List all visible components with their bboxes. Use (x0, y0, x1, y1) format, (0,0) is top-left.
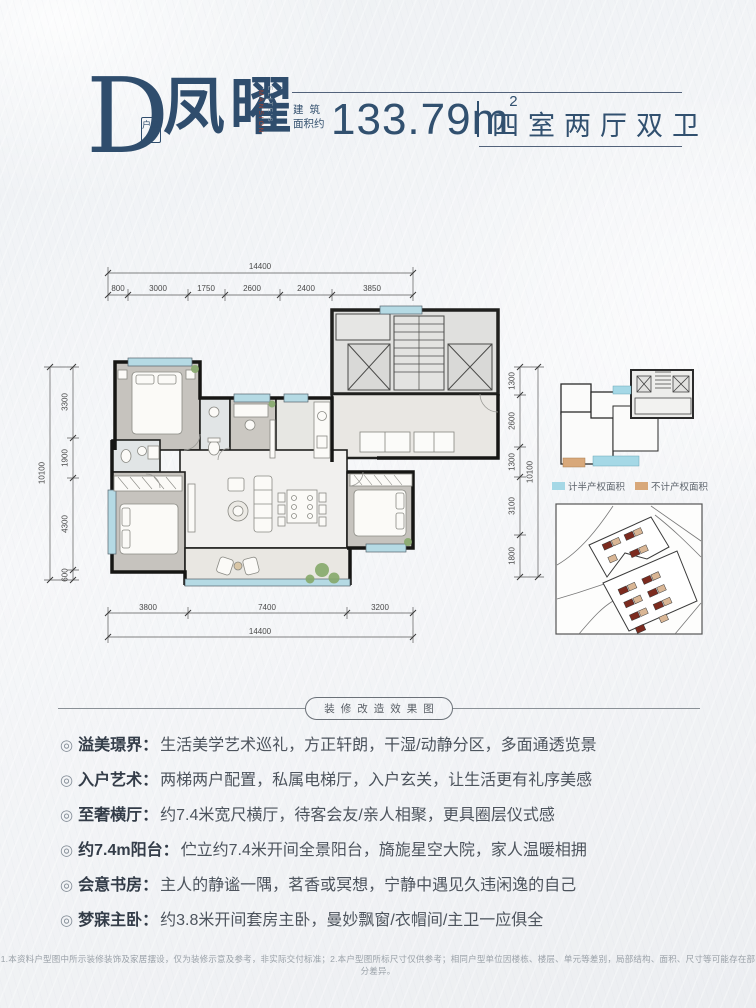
bullseye-icon: ◎ (60, 770, 73, 792)
dim-left-1: 1900 (61, 449, 70, 467)
legend-item-half: 计半产权面积 (552, 479, 625, 493)
feature-row: ◎ 约7.4m阳台 ： 伫立约7.4米开间全景阳台，旖旎星空大院，家人温暖相拥 (60, 840, 708, 875)
feature-title: 入户艺术 (78, 770, 142, 792)
dim-bottom-0: 3800 (139, 603, 157, 612)
dim-left-total: 10100 (38, 461, 47, 484)
dim-right-4: 1800 (508, 547, 517, 565)
dim-top-2: 1750 (197, 284, 215, 293)
dim-top-total: 14400 (249, 262, 272, 271)
key-plan (553, 366, 703, 476)
keyplan-excluded-area (563, 458, 585, 467)
feature-row: ◎ 入户艺术 ： 两梯两户配置，私属电梯厅，入户玄关，让生活更有礼序美感 (60, 770, 708, 805)
divider-capsule: 装修改造效果图 (305, 697, 453, 720)
dim-top-4: 2400 (297, 284, 315, 293)
area-value: 133.79m2 (331, 93, 519, 145)
feature-row: ◎ 梦寐主卧 ： 约3.8米开间套房主卧，曼妙飘窗/衣帽间/主卫一应俱全 (60, 910, 708, 945)
dim-bottom-total: 14400 (249, 627, 272, 636)
legend-item-excluded: 不计产权面积 (635, 479, 708, 493)
bullseye-icon: ◎ (60, 840, 73, 862)
feature-list: ◎ 溢美璟界 ： 生活美学艺术巡礼，方正轩朗，干湿/动静分区，多面通透览景 ◎ … (60, 735, 708, 945)
feature-row: ◎ 会意书房 ： 主人的静谧一隅，茗香或冥想，宁静中遇见久违闲逸的自己 (60, 875, 708, 910)
plan-name-en: ELITE'S MANSION (256, 86, 274, 160)
bullseye-icon: ◎ (60, 910, 73, 932)
plan-name: 凤曜 (163, 76, 297, 138)
divider-line-right (453, 708, 700, 709)
feature-desc: 主人的静谧一隅，茗香或冥想，宁静中遇见久违闲逸的自己 (160, 875, 576, 897)
plan-type-letter: D (86, 64, 169, 168)
site-plan (555, 503, 703, 635)
feature-colon: ： (142, 805, 158, 827)
divider-line-left (58, 708, 305, 709)
rooms-layout-text: 四室两厅双卫 (492, 104, 708, 143)
bullseye-icon: ◎ (60, 875, 73, 897)
dim-right-total: 10100 (526, 460, 535, 483)
feature-desc: 生活美学艺术巡礼，方正轩朗，干湿/动静分区，多面通透览景 (160, 735, 596, 757)
dim-left-2: 4300 (61, 515, 70, 533)
header-rule-bottom (479, 146, 682, 147)
dim-right-1: 2600 (508, 412, 517, 430)
feature-title: 会意书房 (78, 875, 142, 897)
area-prefix-line2: 面积约 (293, 118, 325, 130)
dim-right-2: 1300 (508, 453, 517, 471)
feature-desc: 约7.4米宽尺横厅，待客会友/亲人相聚，更具圈层仪式感 (160, 805, 555, 827)
feature-row: ◎ 至奢横厅 ： 约7.4米宽尺横厅，待客会友/亲人相聚，更具圈层仪式感 (60, 805, 708, 840)
floorplan-page: D 户型 凤曜 ELITE'S MANSION 建筑 面积约 133.79m2 … (0, 0, 756, 1008)
floor-plan-drawing: 14400 800 3000 1750 2600 2400 3850 3800 … (30, 252, 550, 652)
core-room (336, 314, 390, 340)
balcony-rail (185, 579, 350, 586)
plan-name-en-bottom: MANSION (257, 90, 264, 134)
feature-desc: 伫立约7.4米开间全景阳台，旖旎星空大院，家人温暖相拥 (181, 840, 587, 862)
section-divider: 装修改造效果图 (58, 697, 700, 720)
plan-type-tag: 户型 (141, 117, 161, 143)
legend-label-excluded: 不计产权面积 (651, 479, 708, 493)
dim-top-3: 2600 (243, 284, 261, 293)
area-prefix: 建筑 面积约 (293, 103, 326, 131)
dim-bottom-2: 3200 (371, 603, 389, 612)
feature-title: 至奢横厅 (78, 805, 142, 827)
legend-label-half: 计半产权面积 (568, 479, 625, 493)
feature-desc: 两梯两户配置，私属电梯厅，入户玄关，让生活更有礼序美感 (160, 770, 592, 792)
dim-right-0: 1300 (508, 372, 517, 390)
feature-colon: ： (142, 735, 158, 757)
dim-left-3: 600 (61, 568, 70, 582)
dim-top-0: 800 (111, 284, 125, 293)
plan-type-tag-text: 户型 (142, 120, 160, 130)
feature-colon: ： (142, 770, 158, 792)
foyer-closets (360, 432, 454, 452)
dim-top-1: 3000 (149, 284, 167, 293)
keyplan-legend: 计半产权面积 不计产权面积 (552, 479, 708, 493)
feature-desc: 约3.8米开间套房主卧，曼妙飘窗/衣帽间/主卫一应俱全 (160, 910, 543, 932)
dim-bottom-1: 7400 (258, 603, 276, 612)
dim-top-5: 3850 (363, 284, 381, 293)
area-number: 133.79m (331, 95, 509, 144)
feature-colon: ： (163, 840, 179, 862)
legend-swatch-tan (635, 482, 648, 490)
feature-colon: ： (142, 910, 158, 932)
feature-colon: ： (142, 875, 158, 897)
plan-name-en-top: ELITE'S (266, 86, 273, 124)
disclaimer-text: 1.本资料户型图中所示装修装饰及家居摆设，仅为装修示意及参考，非实际交付标准；2… (0, 953, 756, 977)
legend-swatch-cyan (552, 482, 565, 490)
feature-title: 溢美璟界 (78, 735, 142, 757)
feature-title: 约7.4m阳台 (78, 840, 162, 862)
header-divider-bar (477, 101, 479, 137)
area-prefix-line1: 建筑 (293, 104, 326, 116)
dim-right-3: 3100 (508, 497, 517, 515)
dim-left-0: 3300 (61, 393, 70, 411)
feature-title: 梦寐主卧 (78, 910, 142, 932)
bullseye-icon: ◎ (60, 805, 73, 827)
feature-row: ◎ 溢美璟界 ： 生活美学艺术巡礼，方正轩朗，干湿/动静分区，多面通透览景 (60, 735, 708, 770)
bullseye-icon: ◎ (60, 735, 73, 757)
